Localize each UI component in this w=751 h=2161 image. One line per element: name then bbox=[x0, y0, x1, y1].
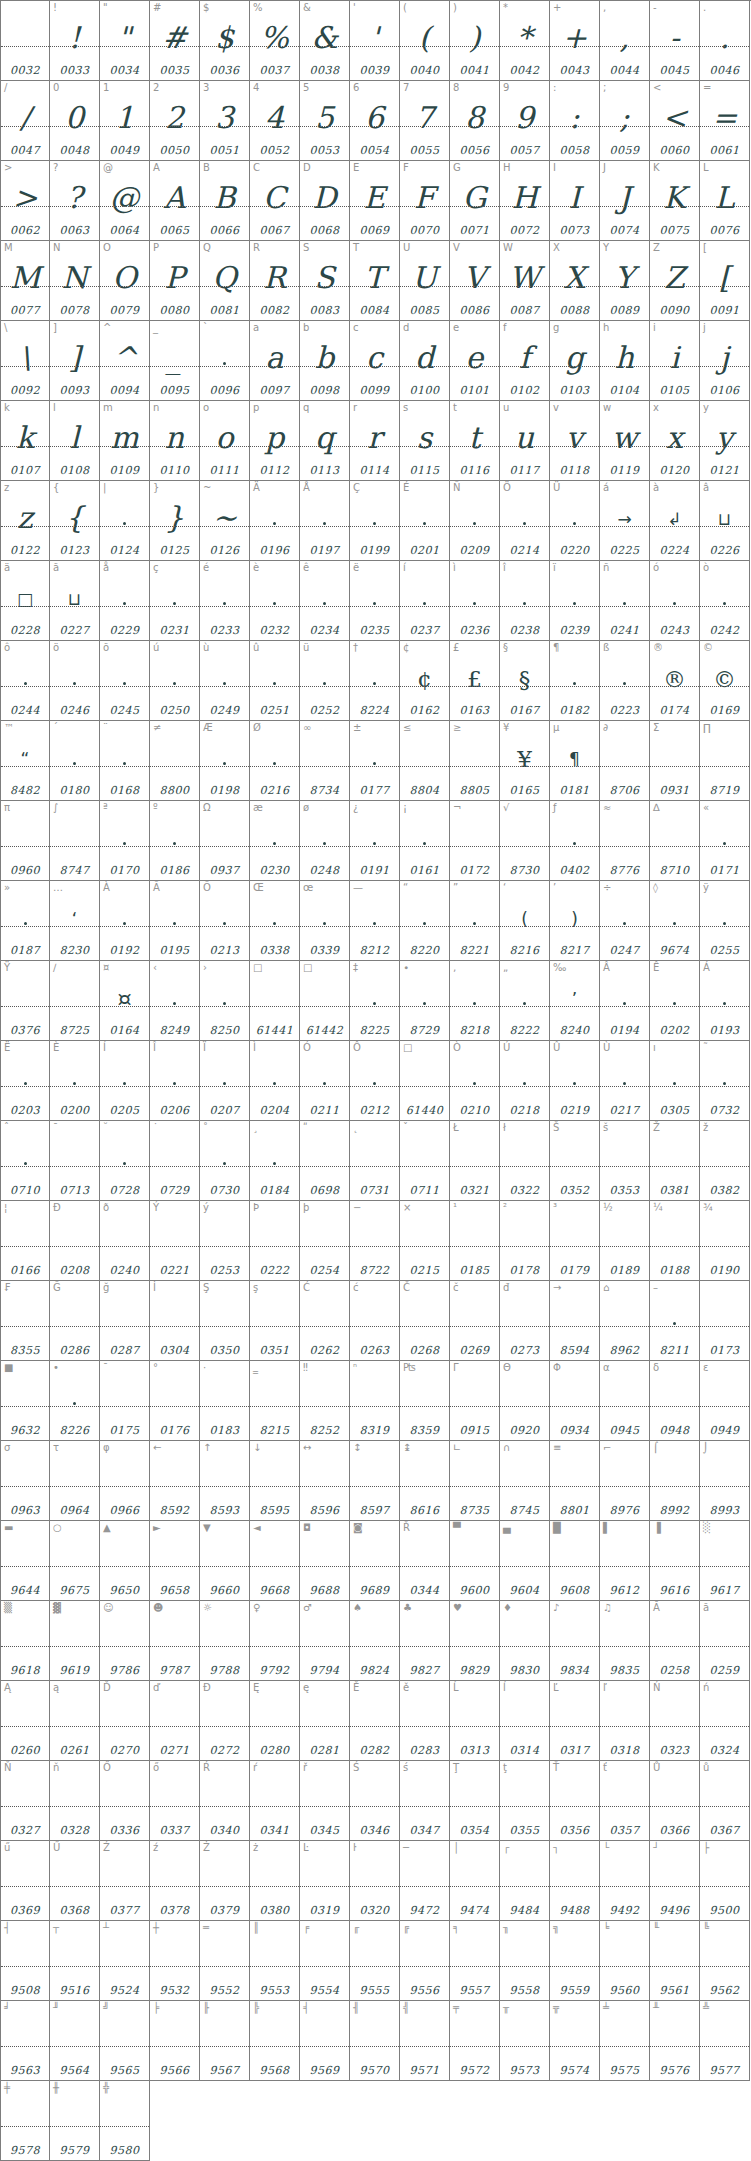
cell-char-label: ¥ bbox=[503, 722, 509, 733]
cell-code-label: 0357 bbox=[600, 1824, 649, 1837]
cell-glyph: m bbox=[110, 423, 138, 453]
missing-glyph-dot bbox=[223, 1162, 226, 1165]
glyph-cell: ≈8776 bbox=[600, 801, 650, 881]
glyph-cell: ╜9564 bbox=[50, 2001, 100, 2081]
cell-code-label: 8776 bbox=[600, 864, 649, 877]
glyph-cell: ''0039 bbox=[350, 1, 400, 81]
cell-char-label: Q bbox=[203, 242, 211, 253]
cell-code-label: 0341 bbox=[250, 1824, 299, 1837]
cell-char-label: ı bbox=[653, 1042, 656, 1053]
cell-code-label: 0381 bbox=[650, 1184, 699, 1197]
cell-glyph: u bbox=[515, 423, 534, 453]
cell-code-label: 0730 bbox=[200, 1184, 249, 1197]
glyph-cell: ║9553 bbox=[250, 1921, 300, 2001]
glyph-cell: Ú0218 bbox=[500, 1041, 550, 1121]
baseline-dotted-line bbox=[450, 446, 499, 447]
glyph-cell: Ò0210 bbox=[450, 1041, 500, 1121]
cell-char-label: ʺ bbox=[303, 1122, 308, 1133]
missing-glyph-dot bbox=[123, 762, 126, 765]
cell-code-label: 0122 bbox=[1, 544, 49, 557]
cell-code-label: 0196 bbox=[250, 544, 299, 557]
glyph-cell: ˜0732 bbox=[700, 1041, 750, 1121]
cell-char-label: ş bbox=[253, 1282, 258, 1293]
cell-code-label: 9576 bbox=[650, 2064, 699, 2077]
glyph-cell: OO0079 bbox=[100, 241, 150, 321]
cell-glyph-area bbox=[200, 961, 249, 1006]
baseline-dotted-line bbox=[150, 1486, 199, 1487]
glyph-cell: Ø0216 bbox=[250, 721, 300, 801]
cell-code-label: 0731 bbox=[350, 1184, 399, 1197]
cell-code-label: 0226 bbox=[700, 544, 749, 557]
cell-char-label: 5 bbox=[303, 82, 309, 93]
missing-glyph-dot bbox=[373, 602, 376, 605]
glyph-cell: ù0249 bbox=[200, 641, 250, 721]
cell-char-label: → bbox=[553, 1282, 561, 1293]
glyph-cell: ŀ0320 bbox=[350, 1841, 400, 1921]
cell-glyph: w bbox=[612, 423, 638, 453]
baseline-dotted-line bbox=[300, 46, 349, 47]
cell-char-label: ů bbox=[703, 1762, 709, 1773]
cell-code-label: 0347 bbox=[400, 1824, 449, 1837]
cell-char-label: ü bbox=[303, 642, 309, 653]
baseline-dotted-line bbox=[50, 46, 99, 47]
charmap-row: kk0107ll0108mm0109nn0110oo0111pp0112qq01… bbox=[0, 401, 751, 481]
cell-glyph: % bbox=[260, 23, 289, 53]
glyph-cell: „8222 bbox=[500, 961, 550, 1041]
cell-char-label: − bbox=[353, 1202, 361, 1213]
glyph-cell: {{0123 bbox=[50, 481, 100, 561]
cell-code-label: 8212 bbox=[350, 944, 399, 957]
glyph-cell: ‚8218 bbox=[450, 961, 500, 1041]
cell-char-label: . bbox=[703, 2, 706, 13]
glyph-cell: ►9658 bbox=[150, 1521, 200, 1601]
cell-char-label: Ż bbox=[203, 1842, 210, 1853]
cell-code-label: 0110 bbox=[150, 464, 199, 477]
cell-char-label: × bbox=[403, 1202, 411, 1213]
glyph-cell: Ś0346 bbox=[350, 1761, 400, 1841]
baseline-dotted-line bbox=[500, 766, 549, 767]
cell-code-label: 0063 bbox=[50, 224, 99, 237]
cell-char-label: Ź bbox=[103, 1842, 110, 1853]
cell-char-label: / bbox=[4, 82, 7, 93]
cell-code-label: 9617 bbox=[700, 1584, 749, 1597]
baseline-dotted-line bbox=[650, 286, 699, 287]
baseline-dotted-line bbox=[1, 1966, 49, 1967]
charmap-row: zz0122{{0123|0124}}0125~~0126Ä0196Å0197Ç… bbox=[0, 481, 751, 561]
baseline-dotted-line bbox=[300, 1806, 349, 1807]
charmap-row: >>0062??0063@@0064AA0065BB0066CC0067DD00… bbox=[0, 161, 751, 241]
baseline-dotted-line bbox=[100, 206, 149, 207]
glyph-cell: TT0084 bbox=[350, 241, 400, 321]
cell-code-label: 8735 bbox=[450, 1504, 499, 1517]
cell-glyph: ? bbox=[66, 183, 82, 213]
cell-char-label: ┴ bbox=[103, 1922, 109, 1933]
glyph-cell: Ì0204 bbox=[250, 1041, 300, 1121]
cell-char-label: L bbox=[703, 162, 709, 173]
baseline-dotted-line bbox=[300, 606, 349, 607]
glyph-cell: Ð0208 bbox=[50, 1201, 100, 1281]
cell-glyph: D bbox=[312, 183, 336, 213]
cell-char-label: ╦ bbox=[553, 2002, 559, 2013]
cell-code-label: 0273 bbox=[500, 1344, 549, 1357]
cell-glyph: [ bbox=[719, 263, 731, 293]
cell-glyph-area: r bbox=[350, 401, 399, 446]
glyph-cell: [[0091 bbox=[700, 241, 750, 321]
cell-char-label: Ś bbox=[353, 1762, 359, 1773]
cell-char-label: ) bbox=[453, 2, 457, 13]
cell-code-label: 0187 bbox=[1, 944, 49, 957]
cell-char-label: ╡ bbox=[303, 2002, 309, 2013]
cell-code-label: 9824 bbox=[350, 1664, 399, 1677]
cell-code-label: 0180 bbox=[50, 784, 99, 797]
glyph-cell: ~~0126 bbox=[200, 481, 250, 561]
cell-code-label: 8719 bbox=[700, 784, 749, 797]
baseline-dotted-line bbox=[250, 526, 299, 527]
baseline-dotted-line bbox=[600, 606, 649, 607]
cell-code-label: 0066 bbox=[200, 224, 249, 237]
baseline-dotted-line bbox=[1, 686, 49, 687]
cell-char-label: | bbox=[103, 482, 106, 493]
glyph-cell: œ0339 bbox=[300, 881, 350, 961]
glyph-cell: jj0106 bbox=[700, 321, 750, 401]
cell-code-label: 0945 bbox=[600, 1424, 649, 1437]
cell-code-label: 0236 bbox=[450, 624, 499, 637]
baseline-dotted-line bbox=[400, 606, 449, 607]
cell-glyph-area: ; bbox=[600, 81, 649, 126]
baseline-dotted-line bbox=[250, 1086, 299, 1087]
cell-char-label: & bbox=[303, 2, 311, 13]
cell-code-label: 0960 bbox=[1, 864, 49, 877]
glyph-cell: ┬9516 bbox=[50, 1921, 100, 2001]
cell-glyph: R bbox=[263, 263, 286, 293]
cell-glyph: j bbox=[720, 343, 729, 373]
cell-char-label: 6 bbox=[353, 82, 359, 93]
glyph-cell: ń0324 bbox=[700, 1681, 750, 1761]
cell-code-label: 0225 bbox=[600, 544, 649, 557]
cell-glyph: + bbox=[562, 23, 587, 53]
cell-code-label: 8592 bbox=[150, 1504, 199, 1517]
cell-code-label: 0228 bbox=[1, 624, 49, 637]
cell-char-label: Ê bbox=[653, 962, 659, 973]
glyph-cell: æ0230 bbox=[250, 801, 300, 881]
cell-code-label: 9688 bbox=[300, 1584, 349, 1597]
baseline-dotted-line bbox=[450, 286, 499, 287]
glyph-cell: ░9617 bbox=[700, 1521, 750, 1601]
cell-glyph: M bbox=[10, 263, 41, 293]
cell-char-label: B bbox=[203, 162, 210, 173]
cell-glyph-area: ] bbox=[50, 321, 99, 366]
baseline-dotted-line bbox=[550, 1566, 599, 1567]
baseline-dotted-line bbox=[50, 606, 99, 607]
cell-char-label: ╞ bbox=[153, 2002, 159, 2013]
cell-code-label: 0352 bbox=[550, 1184, 599, 1197]
baseline-dotted-line bbox=[700, 686, 749, 687]
cell-glyph: k bbox=[16, 423, 34, 453]
missing-glyph-dot bbox=[123, 1082, 126, 1085]
baseline-dotted-line bbox=[450, 1326, 499, 1327]
glyph-cell: è0232 bbox=[250, 561, 300, 641]
cell-char-label: ã bbox=[53, 562, 59, 573]
cell-code-label: 0167 bbox=[500, 704, 549, 717]
glyph-cell: >>0062 bbox=[0, 161, 50, 241]
glyph-cell: ╧9575 bbox=[600, 2001, 650, 2081]
cell-code-label: 8217 bbox=[550, 944, 599, 957]
cell-char-label: ² bbox=[503, 1202, 507, 1213]
cell-char-label: ¤ bbox=[103, 962, 109, 973]
glyph-cell: ƒ0402 bbox=[550, 801, 600, 881]
baseline-dotted-line bbox=[100, 46, 149, 47]
baseline-dotted-line bbox=[450, 1006, 499, 1007]
cell-char-label: J bbox=[603, 162, 606, 173]
glyph-cell: ⌐8976 bbox=[600, 1441, 650, 1521]
glyph-cell: Ä0196 bbox=[250, 481, 300, 561]
cell-glyph: a bbox=[266, 343, 284, 373]
cell-char-label: f bbox=[503, 322, 507, 333]
cell-char-label: N bbox=[53, 242, 60, 253]
cell-glyph: * bbox=[517, 23, 532, 53]
baseline-dotted-line bbox=[350, 1246, 399, 1247]
cell-char-label: $ bbox=[203, 2, 209, 13]
cell-code-label: 0282 bbox=[350, 1744, 399, 1757]
baseline-dotted-line bbox=[650, 926, 699, 927]
charmap-row: ¦0166Ð0208ð0240Ý0221ý0253Þ0222þ0254−8722… bbox=[0, 1201, 751, 1281]
glyph-cell: σ0963 bbox=[0, 1441, 50, 1521]
cell-code-label: 0033 bbox=[50, 64, 99, 77]
baseline-dotted-line bbox=[450, 366, 499, 367]
baseline-dotted-line bbox=[600, 1326, 649, 1327]
baseline-dotted-line bbox=[1, 1886, 49, 1887]
cell-char-label: • bbox=[53, 1362, 59, 1373]
cell-char-label: l bbox=[53, 402, 56, 413]
baseline-dotted-line bbox=[100, 1326, 149, 1327]
cell-glyph: 4 bbox=[265, 103, 284, 133]
cell-code-label: 8804 bbox=[400, 784, 449, 797]
glyph-cell: ]]0093 bbox=[50, 321, 100, 401]
glyph-cell: ↓8595 bbox=[250, 1441, 300, 1521]
glyph-cell: Ą0260 bbox=[0, 1681, 50, 1761]
cell-glyph: & bbox=[311, 23, 338, 53]
cell-code-label: 0168 bbox=[100, 784, 149, 797]
baseline-dotted-line bbox=[550, 926, 599, 927]
cell-glyph-area bbox=[500, 1201, 549, 1246]
cell-char-label: ╚ bbox=[703, 1922, 709, 1933]
cell-code-label: 0344 bbox=[400, 1584, 449, 1597]
glyph-cell: __0095 bbox=[150, 321, 200, 401]
cell-code-label: 9474 bbox=[450, 1904, 499, 1917]
cell-char-label: š bbox=[603, 1122, 608, 1133]
cell-code-label: 0218 bbox=[500, 1104, 549, 1117]
baseline-dotted-line bbox=[50, 1326, 99, 1327]
cell-char-label: [ bbox=[703, 242, 707, 253]
glyph-cell: dd0100 bbox=[400, 321, 450, 401]
cell-glyph-area bbox=[250, 1761, 299, 1806]
cell-char-label: ┬ bbox=[53, 1922, 59, 1933]
cell-char-label: ® bbox=[653, 642, 663, 653]
baseline-dotted-line bbox=[300, 126, 349, 127]
baseline-dotted-line bbox=[100, 2046, 149, 2047]
missing-glyph-dot bbox=[373, 522, 376, 525]
cell-char-label: ò bbox=[703, 562, 709, 573]
missing-glyph-dot bbox=[73, 1402, 76, 1405]
cell-glyph: \ bbox=[20, 343, 30, 373]
cell-char-label: ◙ bbox=[353, 1522, 363, 1533]
cell-char-label: È bbox=[53, 1042, 59, 1053]
cell-code-label: 0162 bbox=[400, 704, 449, 717]
cell-code-label: 0313 bbox=[450, 1744, 499, 1757]
glyph-cell: `0096 bbox=[200, 321, 250, 401]
cell-glyph-area bbox=[1, 1201, 49, 1246]
glyph-cell: ý0253 bbox=[200, 1201, 250, 1281]
glyph-cell: Å0197 bbox=[300, 481, 350, 561]
cell-code-label: 0963 bbox=[1, 1504, 49, 1517]
cell-char-label: Æ bbox=[203, 722, 213, 733]
cell-code-label: 8993 bbox=[700, 1504, 749, 1517]
cell-char-label: Õ bbox=[203, 882, 211, 893]
baseline-dotted-line bbox=[100, 2126, 149, 2127]
cell-char-label: τ bbox=[53, 1442, 59, 1453]
glyph-cell: Φ0934 bbox=[550, 1361, 600, 1441]
baseline-dotted-line bbox=[550, 446, 599, 447]
cell-char-label: î bbox=[503, 562, 506, 573]
cell-glyph: @ bbox=[110, 183, 140, 213]
cell-char-label: Č bbox=[403, 1282, 410, 1293]
cell-glyph: r bbox=[367, 423, 381, 453]
baseline-dotted-line bbox=[50, 1726, 99, 1727]
cell-char-label: Ŀ bbox=[303, 1842, 309, 1853]
cell-char-label: G bbox=[453, 162, 461, 173]
glyph-cell: µ¶0181 bbox=[550, 721, 600, 801]
cell-glyph-area bbox=[500, 561, 549, 606]
glyph-cell: ╓9555 bbox=[350, 1921, 400, 2001]
cell-glyph-area: ) bbox=[450, 1, 499, 46]
cell-char-label: ╣ bbox=[403, 2002, 409, 2013]
glyph-cell: –8211 bbox=[650, 1281, 700, 1361]
cell-char-label: s bbox=[403, 402, 408, 413]
cell-code-label: 9616 bbox=[650, 1584, 699, 1597]
baseline-dotted-line bbox=[650, 526, 699, 527]
missing-glyph-dot bbox=[523, 1082, 526, 1085]
cell-char-label: ☺ bbox=[103, 1602, 113, 1613]
baseline-dotted-line bbox=[200, 446, 249, 447]
glyph-cell: ³0179 bbox=[550, 1201, 600, 1281]
cell-char-label: ╗ bbox=[553, 1922, 559, 1933]
cell-char-label: ∟ bbox=[453, 1442, 461, 1453]
cell-char-label: ý bbox=[203, 1202, 209, 1213]
missing-glyph-dot bbox=[623, 1082, 626, 1085]
baseline-dotted-line bbox=[150, 2046, 199, 2047]
cell-code-label: 0115 bbox=[400, 464, 449, 477]
glyph-cell: <<0060 bbox=[650, 81, 700, 161]
cell-glyph-area: - bbox=[650, 1, 699, 46]
cell-code-label: 0052 bbox=[250, 144, 299, 157]
baseline-dotted-line bbox=[250, 766, 299, 767]
baseline-dotted-line bbox=[100, 606, 149, 607]
glyph-cell: ▌9612 bbox=[600, 1521, 650, 1601]
glyph-cell: ‼8252 bbox=[300, 1361, 350, 1441]
baseline-dotted-line bbox=[400, 1886, 449, 1887]
missing-glyph-dot bbox=[523, 522, 526, 525]
missing-glyph-dot bbox=[473, 1002, 476, 1005]
cell-char-label: ÷ bbox=[603, 882, 611, 893]
cell-char-label: ě bbox=[403, 1682, 409, 1693]
cell-code-label: 9604 bbox=[500, 1584, 549, 1597]
baseline-dotted-line bbox=[350, 1406, 399, 1407]
glyph-cell: ^^0094 bbox=[100, 321, 150, 401]
cell-char-label: Ő bbox=[103, 1762, 111, 1773]
glyph-cell: ¾0190 bbox=[700, 1201, 750, 1281]
cell-code-label: 8805 bbox=[450, 784, 499, 797]
missing-glyph-dot bbox=[273, 682, 276, 685]
cell-code-label: 8221 bbox=[450, 944, 499, 957]
cell-char-label: Ä bbox=[253, 482, 260, 493]
cell-code-label: 0227 bbox=[50, 624, 99, 637]
cell-glyph-area: j bbox=[700, 321, 749, 366]
missing-glyph-dot bbox=[673, 1322, 676, 1325]
baseline-dotted-line bbox=[400, 1806, 449, 1807]
cell-code-label: 0061 bbox=[700, 144, 749, 157]
baseline-dotted-line bbox=[150, 366, 199, 367]
glyph-cell: Ã0195 bbox=[150, 881, 200, 961]
cell-char-label: S bbox=[303, 242, 309, 253]
cell-char-label: Ÿ bbox=[4, 962, 10, 973]
cell-glyph: ¢ bbox=[417, 668, 432, 691]
cell-char-label: D bbox=[303, 162, 311, 173]
cell-glyph: B bbox=[213, 183, 235, 213]
baseline-dotted-line bbox=[450, 1486, 499, 1487]
cell-code-label: 0048 bbox=[50, 144, 99, 157]
baseline-dotted-line bbox=[400, 1566, 449, 1567]
baseline-dotted-line bbox=[200, 1566, 249, 1567]
cell-code-label: 0124 bbox=[100, 544, 149, 557]
cell-code-label: 9561 bbox=[650, 1984, 699, 1997]
cell-code-label: 9787 bbox=[150, 1664, 199, 1677]
cell-char-label: ö bbox=[53, 642, 59, 653]
cell-glyph: 5 bbox=[315, 103, 334, 133]
cell-code-label: 0732 bbox=[700, 1104, 749, 1117]
baseline-dotted-line bbox=[350, 686, 399, 687]
cell-code-label: 9557 bbox=[450, 1984, 499, 1997]
cell-char-label: ù bbox=[203, 642, 209, 653]
baseline-dotted-line bbox=[150, 846, 199, 847]
cell-char-label bbox=[4, 2, 7, 13]
baseline-dotted-line bbox=[700, 1806, 749, 1807]
baseline-dotted-line bbox=[650, 1326, 699, 1327]
cell-code-label: 0318 bbox=[600, 1744, 649, 1757]
cell-char-label: ì bbox=[453, 562, 456, 573]
cell-char-label: ▄ bbox=[503, 1522, 511, 1533]
cell-char-label: Ą bbox=[4, 1682, 11, 1693]
missing-glyph-dot bbox=[173, 602, 176, 605]
cell-char-label: æ bbox=[253, 802, 263, 813]
baseline-dotted-line bbox=[350, 846, 399, 847]
baseline-dotted-line bbox=[450, 1086, 499, 1087]
cell-glyph: ® bbox=[663, 668, 686, 691]
baseline-dotted-line bbox=[100, 366, 149, 367]
baseline-dotted-line bbox=[150, 1646, 199, 1647]
baseline-dotted-line bbox=[250, 1646, 299, 1647]
cell-char-label: ╥ bbox=[503, 2002, 509, 2013]
cell-char-label: y bbox=[703, 402, 709, 413]
missing-glyph-dot bbox=[273, 842, 276, 845]
cell-code-label: 8710 bbox=[650, 864, 699, 877]
glyph-cell: ø0248 bbox=[300, 801, 350, 881]
cell-code-label: 0920 bbox=[500, 1424, 549, 1437]
cell-char-label: ∕ bbox=[53, 962, 56, 973]
cell-char-label: è bbox=[253, 562, 259, 573]
cell-code-label: 0086 bbox=[450, 304, 499, 317]
cell-char-label: ź bbox=[153, 1842, 158, 1853]
cell-code-label: 0356 bbox=[550, 1824, 599, 1837]
